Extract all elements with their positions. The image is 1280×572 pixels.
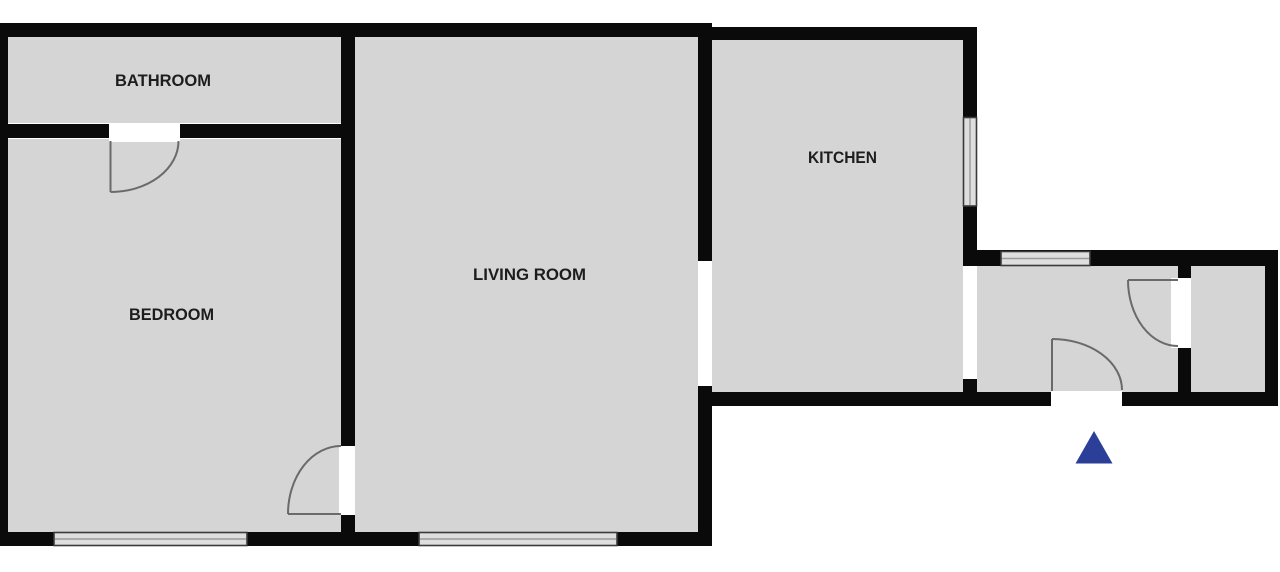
svg-text:BATHROOM: BATHROOM: [115, 71, 211, 90]
svg-text:KITCHEN: KITCHEN: [808, 148, 877, 167]
svg-text:BEDROOM: BEDROOM: [129, 305, 214, 324]
svg-text:LIVING ROOM: LIVING ROOM: [473, 265, 586, 284]
